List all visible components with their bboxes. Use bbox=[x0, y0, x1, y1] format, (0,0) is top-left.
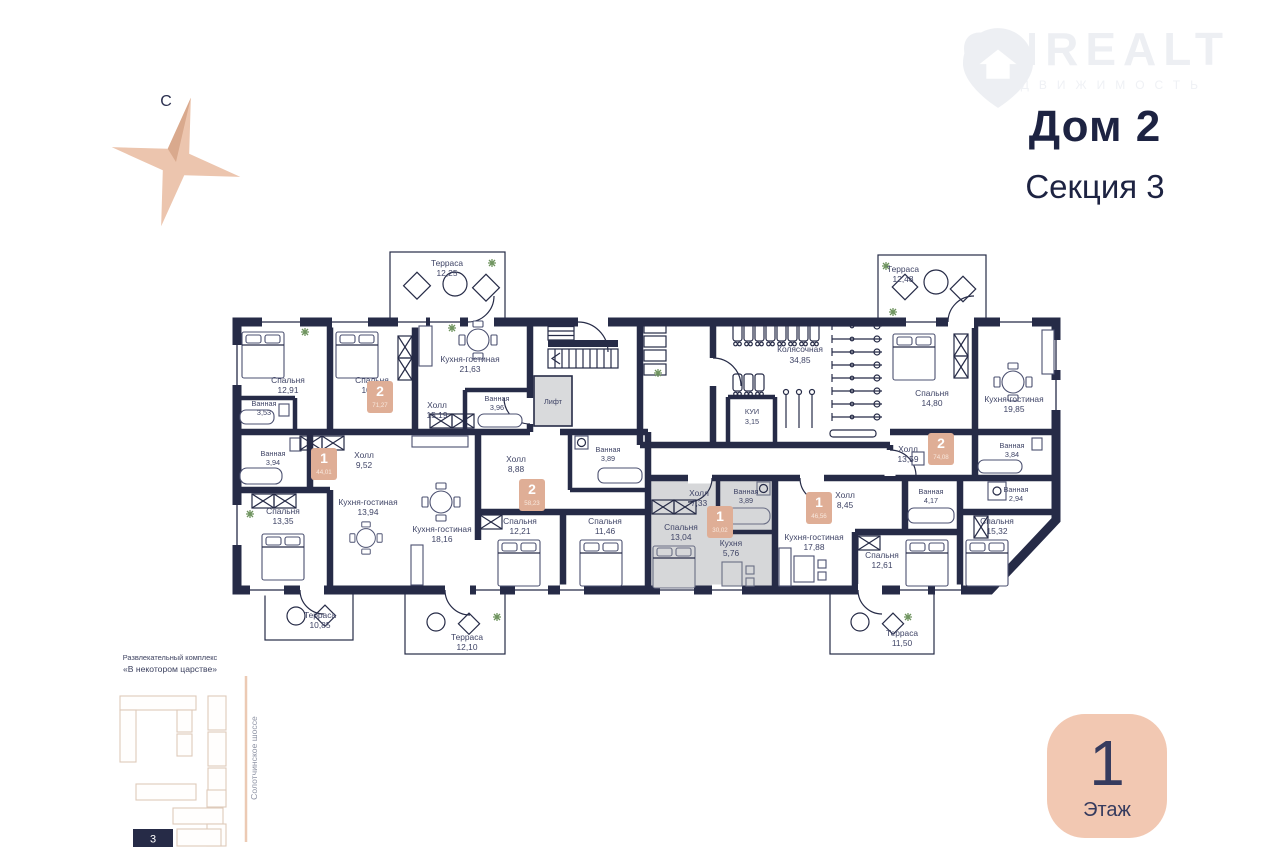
door-arc bbox=[858, 584, 882, 614]
apartment-badge: 274,08 bbox=[928, 433, 954, 465]
road-label: Солотчинское шоссе bbox=[249, 716, 259, 800]
room-label: Холл8,88 bbox=[506, 454, 526, 474]
room-label: Кухня5,76 bbox=[720, 538, 742, 558]
plan-heading: Дом 2 Секция 3 bbox=[925, 102, 1265, 206]
svg-text:44,01: 44,01 bbox=[316, 469, 332, 476]
apartment-badge: 146,56 bbox=[806, 492, 832, 524]
floor-number: 1 bbox=[1089, 731, 1125, 795]
svg-text:2: 2 bbox=[937, 435, 945, 451]
room-label: Терраса12,25 bbox=[431, 258, 463, 278]
complex-label-line2: «В некотором царстве» bbox=[123, 664, 217, 674]
minimap-buildings bbox=[120, 696, 226, 846]
svg-text:1: 1 bbox=[815, 494, 823, 510]
minimap-section-3: 3 bbox=[133, 829, 173, 847]
room-label: КУИ3,15 bbox=[745, 407, 759, 426]
room-label: Холл8,45 bbox=[835, 490, 855, 510]
room-label: Холл9,52 bbox=[354, 450, 374, 470]
compass-north-label: С bbox=[160, 93, 172, 110]
svg-text:30,02: 30,02 bbox=[712, 527, 728, 534]
room-label: Терраса12,48 bbox=[887, 264, 919, 284]
minimap: Развлекательный комплекс «В некотором ца… bbox=[120, 653, 259, 847]
svg-text:46,56: 46,56 bbox=[811, 513, 827, 520]
room-label: Холл15,19 bbox=[427, 400, 448, 420]
section-title: Секция 3 bbox=[925, 168, 1265, 206]
svg-text:2: 2 bbox=[376, 383, 384, 399]
compass: С bbox=[97, 83, 255, 241]
door-arc bbox=[445, 584, 470, 615]
onrealt-pin-icon bbox=[962, 26, 1034, 112]
svg-text:3: 3 bbox=[150, 834, 156, 846]
svg-text:58,23: 58,23 bbox=[524, 500, 540, 507]
room-label: Холл7,33 bbox=[689, 488, 709, 508]
lift-label: Лифт bbox=[544, 397, 563, 406]
svg-text:1: 1 bbox=[716, 508, 724, 524]
complex-label-line1: Развлекательный комплекс bbox=[123, 653, 218, 662]
room-label: Терраса11,50 bbox=[886, 628, 918, 648]
svg-text:1: 1 bbox=[320, 450, 328, 466]
apartment-badge: 258,23 bbox=[519, 479, 545, 511]
lift: Лифт bbox=[534, 376, 572, 426]
compass-star-icon bbox=[97, 83, 255, 241]
apartment-badge: 271,27 bbox=[367, 381, 393, 413]
floor-label: Этаж bbox=[1083, 799, 1131, 822]
svg-text:71,27: 71,27 bbox=[372, 402, 388, 409]
room-label: Терраса12,10 bbox=[451, 632, 483, 652]
door-arc bbox=[948, 296, 974, 328]
apartment-badge: 130,02 bbox=[707, 506, 733, 538]
svg-text:2: 2 bbox=[528, 481, 536, 497]
apartment-badge: 144,01 bbox=[311, 448, 337, 480]
floorplan-page: С bbox=[0, 0, 1280, 860]
house-title: Дом 2 bbox=[925, 102, 1265, 152]
svg-text:74,08: 74,08 bbox=[933, 454, 949, 461]
room-label: Холл13,59 bbox=[898, 444, 919, 464]
building: Лифт Колясочная34,85 КУИ3,15 bbox=[232, 258, 1062, 652]
floor-badge: 1 Этаж bbox=[1047, 714, 1167, 838]
watermark-logo: ONREALT НЕДВИЖИМОСТЬ bbox=[962, 26, 1230, 92]
